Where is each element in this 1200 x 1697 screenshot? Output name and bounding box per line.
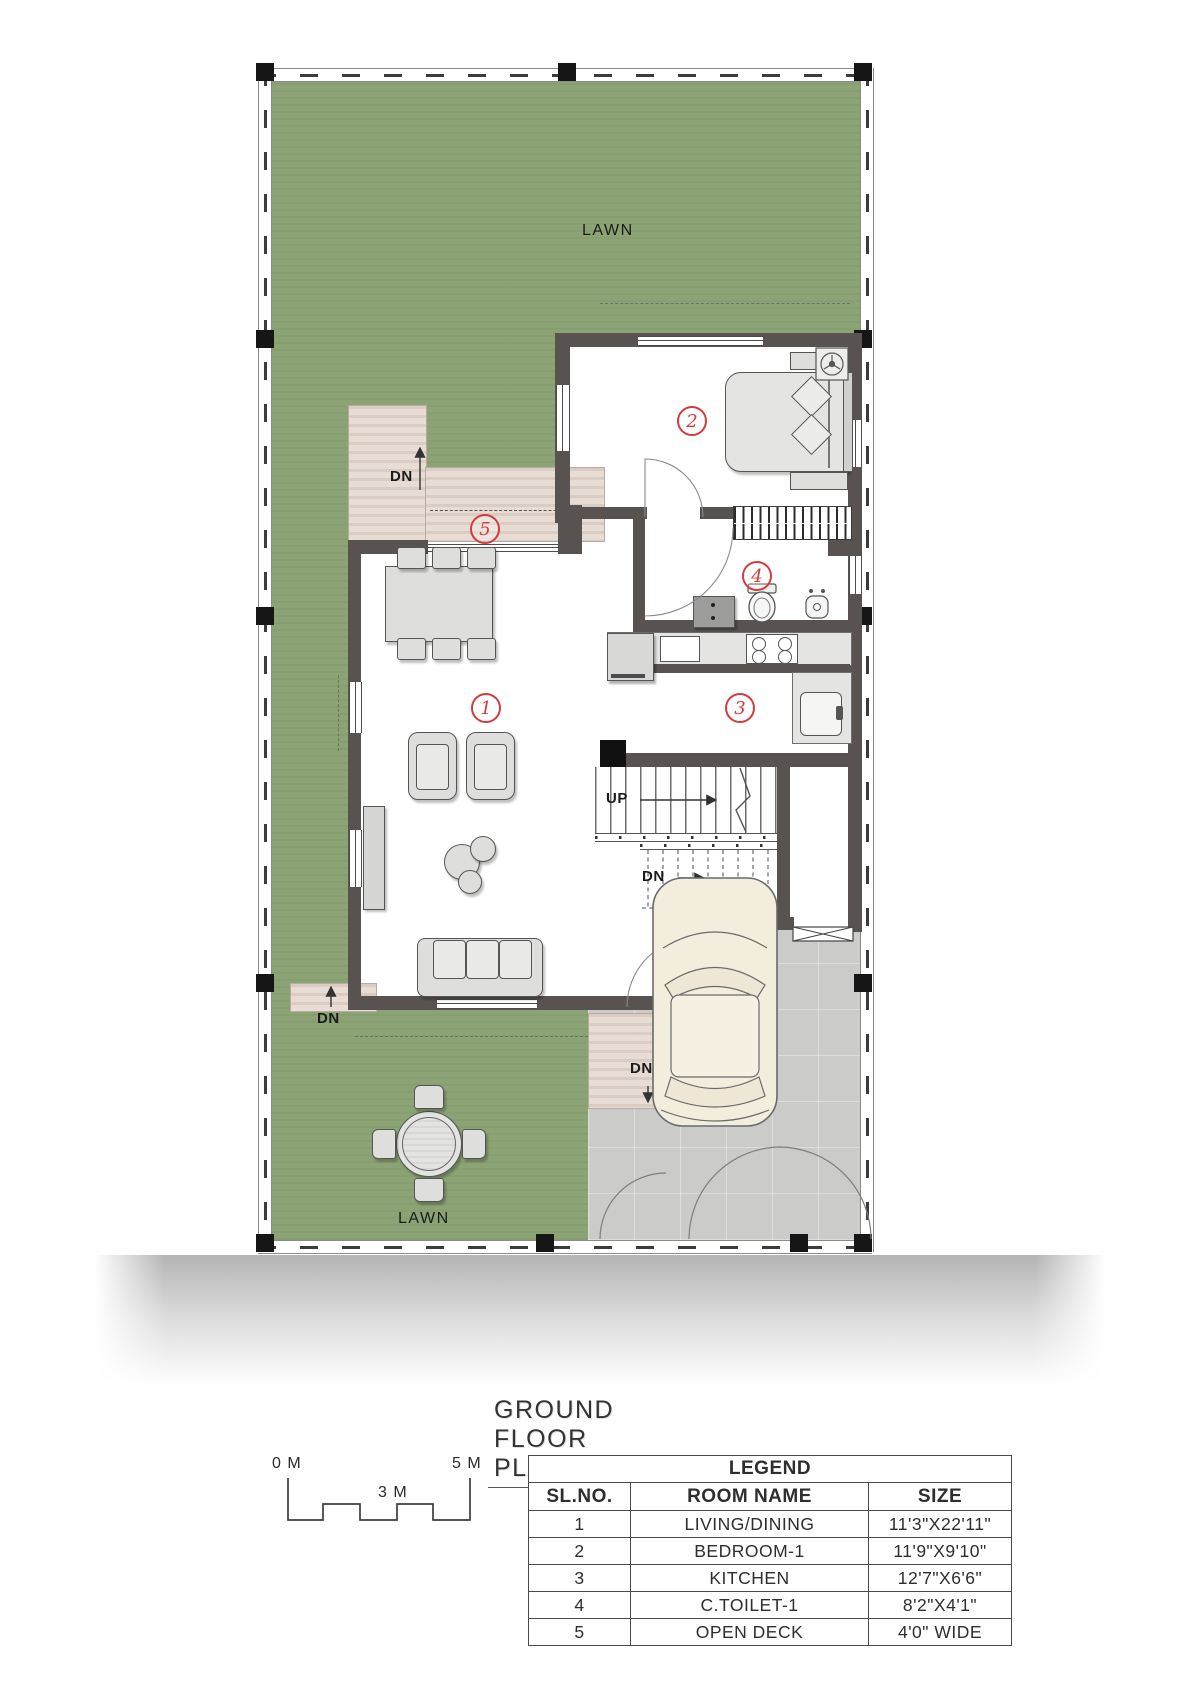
- lawn-label-top: LAWN: [582, 222, 634, 240]
- legend-col-slno: SL.NO.: [529, 1483, 631, 1511]
- legend-table: LEGEND SL.NO. ROOM NAME SIZE 1 LIVING/DI…: [528, 1455, 1012, 1646]
- legend-cell-size: 11'3"X22'11": [869, 1511, 1012, 1538]
- room-marker-bedroom: 2: [677, 406, 707, 436]
- scale-zero-label: 0 M: [272, 1455, 302, 1473]
- legend-row: 5 OPEN DECK 4'0" WIDE: [529, 1619, 1012, 1646]
- legend-cell-name: LIVING/DINING: [631, 1511, 869, 1538]
- legend-row: 2 BEDROOM-1 11'9"X9'10": [529, 1538, 1012, 1565]
- legend-cell-size: 8'2"X4'1": [869, 1592, 1012, 1619]
- legend-col-room: ROOM NAME: [631, 1483, 869, 1511]
- side-dn-label: DN: [317, 1010, 340, 1027]
- porch-dn-label: DN: [630, 1060, 653, 1077]
- legend-cell-size: 12'7"X6'6": [869, 1565, 1012, 1592]
- wash-basin: [806, 589, 828, 618]
- marker-number: 1: [480, 698, 491, 719]
- legend-cell-no: 4: [529, 1592, 631, 1619]
- legend-cell-name: KITCHEN: [631, 1565, 869, 1592]
- legend-cell-size: 11'9"X9'10": [869, 1538, 1012, 1565]
- room-marker-living: 1: [471, 693, 501, 723]
- floor-plan-sheet: LAWN LAWN DN UP DN DN DN 1 2 3 4 5 GROUN…: [0, 0, 1200, 1697]
- marker-number: 5: [479, 519, 490, 540]
- legend-row: 1 LIVING/DINING 11'3"X22'11": [529, 1511, 1012, 1538]
- hatch-lintel: [793, 927, 853, 941]
- legend-row: 3 KITCHEN 12'7"X6'6": [529, 1565, 1012, 1592]
- car: [653, 878, 777, 1126]
- legend-cell-no: 5: [529, 1619, 631, 1646]
- room-marker-deck: 5: [470, 514, 500, 544]
- gate-swings: [600, 1147, 871, 1239]
- scale-five-label: 5 M: [452, 1455, 482, 1473]
- legend-cell-name: BEDROOM-1: [631, 1538, 869, 1565]
- legend-cell-no: 2: [529, 1538, 631, 1565]
- stairs-dn-label: DN: [642, 868, 665, 885]
- marker-number: 2: [686, 411, 697, 432]
- ground-fade: [95, 1255, 1105, 1415]
- legend-cell-no: 1: [529, 1511, 631, 1538]
- room-marker-toilet: 4: [742, 561, 772, 591]
- legend-col-size: SIZE: [869, 1483, 1012, 1511]
- stairs-up-label: UP: [606, 790, 628, 807]
- scale-three-label: 3 M: [378, 1484, 408, 1502]
- legend-cell-name: C.TOILET-1: [631, 1592, 869, 1619]
- ceiling-fan-icon: [816, 348, 848, 380]
- legend-row: 4 C.TOILET-1 8'2"X4'1": [529, 1592, 1012, 1619]
- lawn-label-bottom: LAWN: [398, 1210, 450, 1228]
- room-marker-kitchen: 3: [725, 693, 755, 723]
- stair-break-line: [736, 768, 750, 832]
- marker-number: 3: [734, 698, 745, 719]
- legend-cell-name: OPEN DECK: [631, 1619, 869, 1646]
- ground-texture: [95, 1255, 1105, 1415]
- marker-number: 4: [751, 566, 762, 587]
- legend-title: LEGEND: [529, 1456, 1012, 1483]
- deck-dn-label: DN: [390, 468, 413, 485]
- legend-cell-size: 4'0" WIDE: [869, 1619, 1012, 1646]
- legend-cell-no: 3: [529, 1565, 631, 1592]
